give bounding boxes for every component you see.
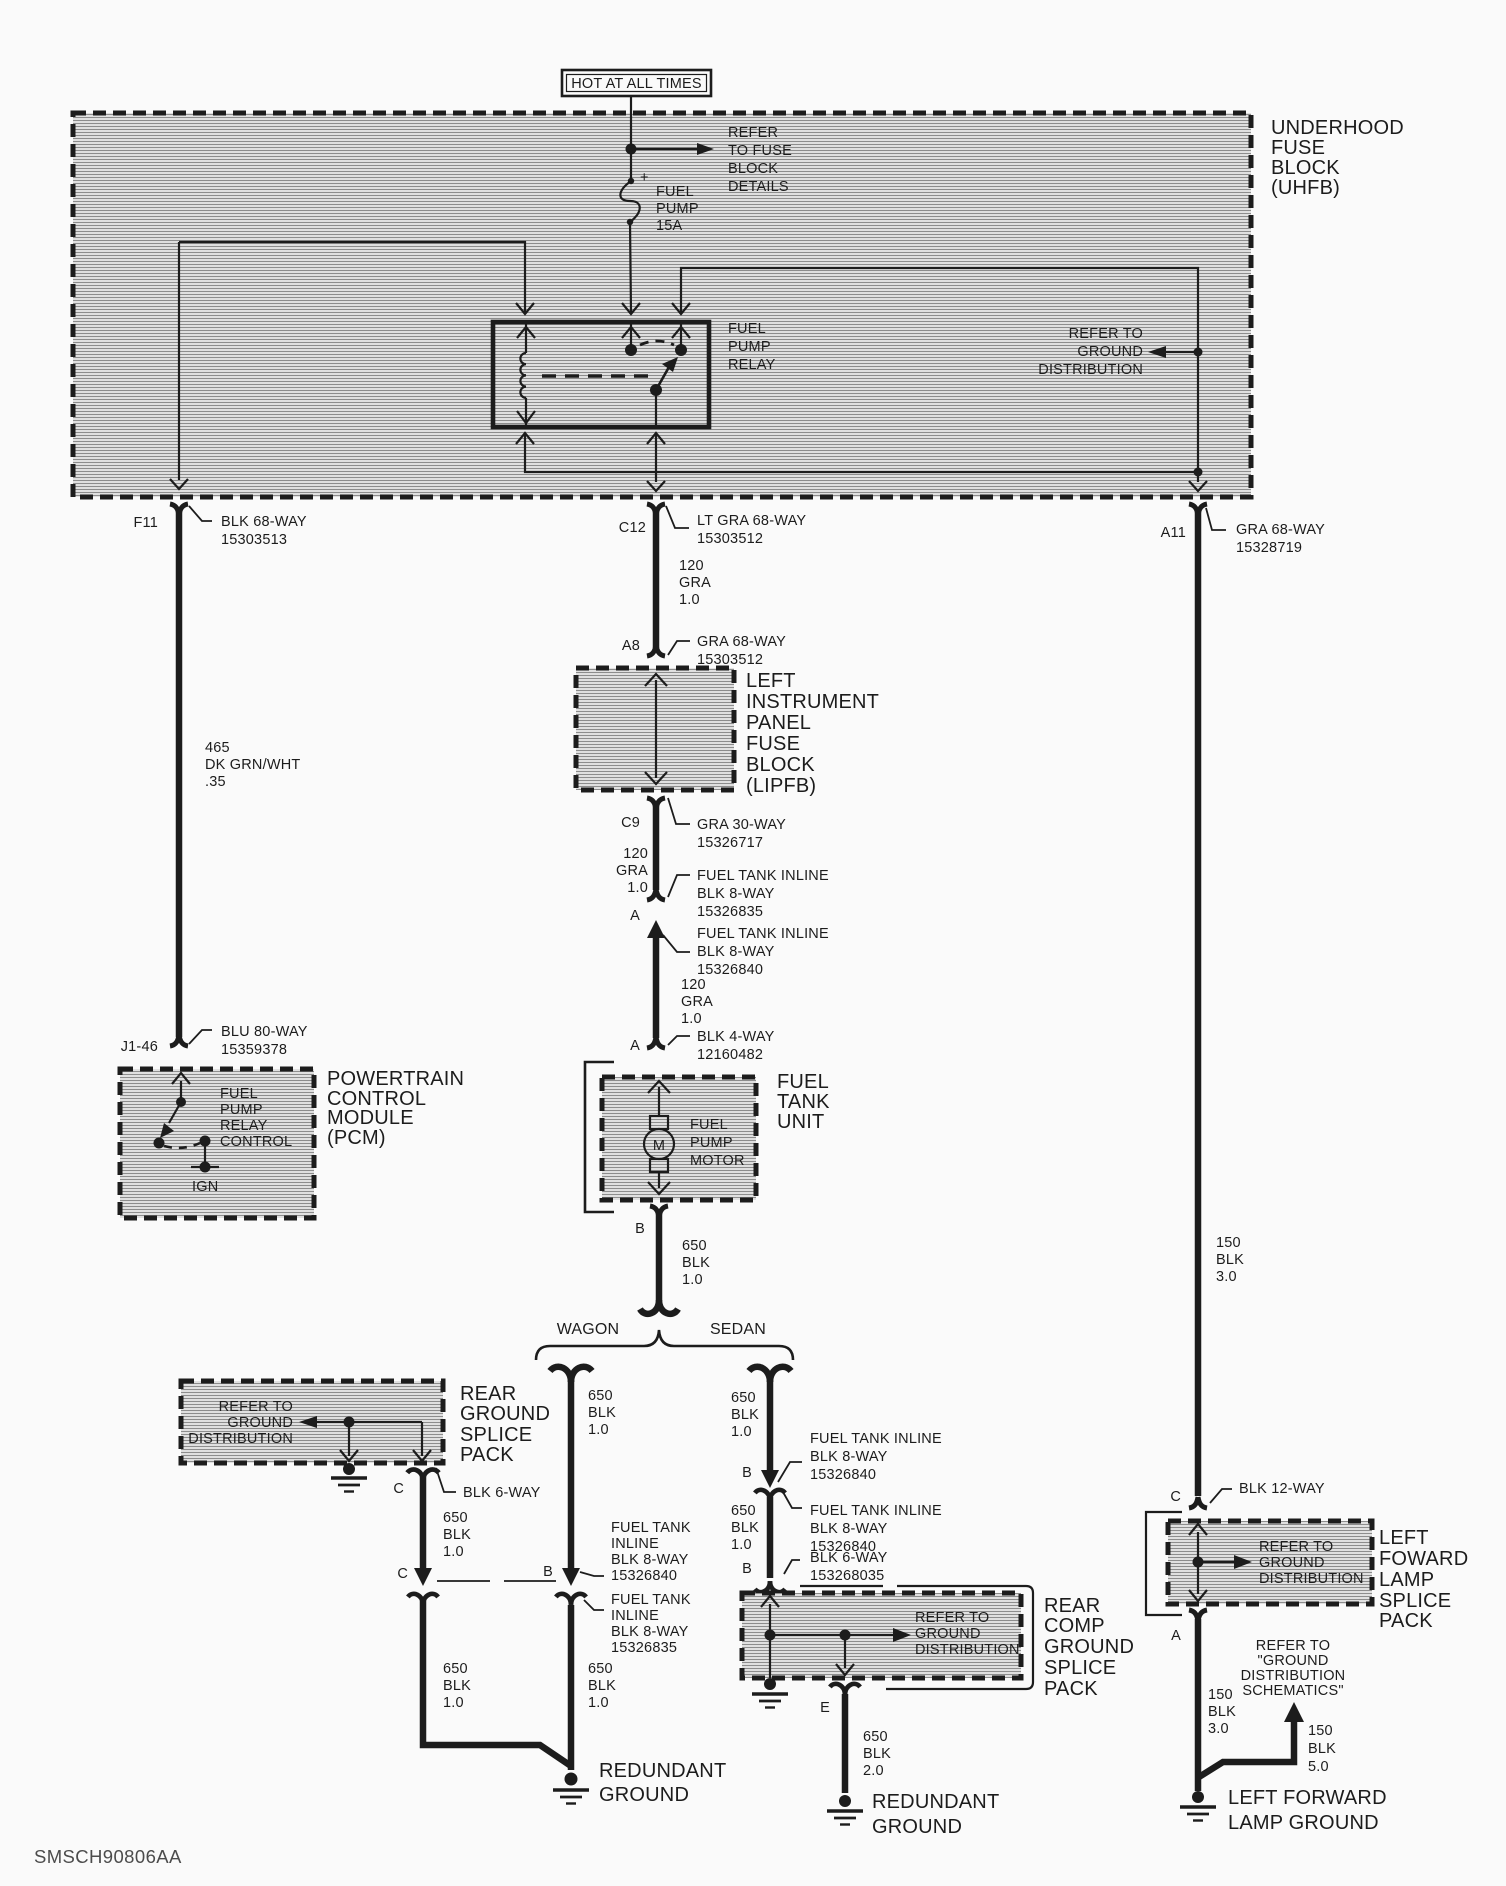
svg-text:SPLICE: SPLICE [460,1424,532,1446]
svg-text:RELAY: RELAY [728,357,776,373]
svg-text:LEFT: LEFT [1379,1527,1429,1549]
svg-text:GROUND: GROUND [915,1626,981,1642]
svg-text:BLK 6-WAY: BLK 6-WAY [810,1550,888,1566]
svg-text:A11: A11 [1161,525,1186,541]
svg-text:PUMP: PUMP [690,1135,733,1151]
svg-text:GROUND: GROUND [1259,1555,1325,1571]
svg-text:REFER TO: REFER TO [1069,326,1143,342]
svg-text:1.0: 1.0 [443,1695,464,1711]
svg-text:PACK: PACK [1379,1610,1433,1632]
svg-text:E: E [820,1700,830,1716]
svg-text:BLOCK: BLOCK [1271,157,1340,179]
svg-text:650: 650 [588,1388,613,1404]
svg-text:1.0: 1.0 [443,1544,464,1560]
svg-text:153268035: 153268035 [810,1568,884,1584]
svg-text:BLK: BLK [443,1527,471,1543]
svg-text:GROUND: GROUND [599,1784,689,1806]
svg-text:PUMP: PUMP [656,201,699,217]
svg-text:DETAILS: DETAILS [728,179,789,195]
svg-text:DISTRIBUTION: DISTRIBUTION [1241,1668,1346,1684]
svg-text:1.0: 1.0 [588,1422,609,1438]
svg-text:A: A [630,1038,640,1054]
svg-text:"GROUND: "GROUND [1258,1653,1329,1669]
svg-text:150: 150 [1216,1235,1241,1251]
svg-text:BLK: BLK [588,1678,616,1694]
svg-text:150: 150 [1208,1687,1233,1703]
svg-text:+: + [640,170,649,186]
svg-text:(UHFB): (UHFB) [1271,177,1340,199]
svg-text:BLK 8-WAY: BLK 8-WAY [611,1624,689,1640]
svg-text:1.0: 1.0 [731,1424,752,1440]
svg-text:UNIT: UNIT [777,1111,824,1133]
svg-text:BLK 8-WAY: BLK 8-WAY [697,886,775,902]
svg-text:COMP: COMP [1044,1615,1105,1637]
svg-text:GROUND: GROUND [227,1415,293,1431]
svg-text:FUEL TANK INLINE: FUEL TANK INLINE [697,926,829,942]
svg-text:FUSE: FUSE [746,733,800,755]
svg-text:C9: C9 [621,815,640,831]
svg-text:1.0: 1.0 [731,1537,752,1553]
svg-text:SEDAN: SEDAN [710,1321,766,1338]
svg-text:FUEL TANK: FUEL TANK [611,1520,691,1536]
svg-text:GRA: GRA [616,863,648,879]
svg-text:TO FUSE: TO FUSE [728,143,792,159]
svg-text:GROUND: GROUND [1077,344,1143,360]
svg-text:REFER TO: REFER TO [915,1610,989,1626]
svg-text:A8: A8 [622,638,640,654]
svg-text:CONTROL: CONTROL [220,1134,292,1150]
svg-text:3.0: 3.0 [1208,1721,1229,1737]
svg-text:TANK: TANK [777,1091,830,1113]
svg-text:DISTRIBUTION: DISTRIBUTION [1259,1571,1364,1587]
svg-text:120: 120 [623,846,648,862]
svg-text:PACK: PACK [1044,1678,1098,1700]
svg-text:1.0: 1.0 [681,1011,702,1027]
svg-text:BLK 68-WAY: BLK 68-WAY [221,514,307,530]
svg-text:GRA 68-WAY: GRA 68-WAY [697,634,786,650]
svg-text:REFER TO: REFER TO [1256,1638,1330,1654]
svg-text:REAR: REAR [460,1383,516,1405]
svg-text:GRA 30-WAY: GRA 30-WAY [697,817,786,833]
svg-text:15326835: 15326835 [697,904,763,920]
svg-text:12160482: 12160482 [697,1047,763,1063]
svg-text:BLK 8-WAY: BLK 8-WAY [810,1449,888,1465]
svg-text:REDUNDANT: REDUNDANT [599,1760,726,1782]
svg-text:F11: F11 [133,515,158,531]
svg-text:DISTRIBUTION: DISTRIBUTION [188,1431,293,1447]
svg-text:GROUND: GROUND [460,1403,550,1425]
svg-text:15326840: 15326840 [611,1568,677,1584]
svg-text:650: 650 [443,1510,468,1526]
svg-text:650: 650 [731,1390,756,1406]
svg-text:120: 120 [681,977,706,993]
svg-text:LAMP GROUND: LAMP GROUND [1228,1812,1379,1834]
svg-text:DK GRN/WHT: DK GRN/WHT [205,757,300,773]
svg-text:15326835: 15326835 [611,1640,677,1656]
svg-text:UNDERHOOD: UNDERHOOD [1271,117,1404,139]
svg-text:LEFT FORWARD: LEFT FORWARD [1228,1787,1387,1809]
svg-text:POWERTRAIN: POWERTRAIN [327,1068,464,1090]
svg-text:REFER TO: REFER TO [219,1399,293,1415]
svg-text:MODULE: MODULE [327,1107,414,1129]
svg-text:BLK: BLK [863,1746,891,1762]
svg-text:15326840: 15326840 [697,962,763,978]
svg-text:C12: C12 [619,520,646,536]
svg-text:BLK 8-WAY: BLK 8-WAY [810,1521,888,1537]
svg-text:LAMP: LAMP [1379,1569,1434,1591]
svg-text:INLINE: INLINE [611,1536,659,1552]
svg-text:SMSCH90806AA: SMSCH90806AA [34,1846,182,1867]
svg-text:15303512: 15303512 [697,531,763,547]
svg-text:BLK: BLK [1208,1704,1236,1720]
svg-text:FUEL: FUEL [728,321,766,337]
svg-text:2.0: 2.0 [863,1763,884,1779]
svg-text:GROUND: GROUND [1044,1636,1134,1658]
svg-text:.35: .35 [205,774,226,790]
svg-text:IGN: IGN [192,1179,218,1195]
svg-text:FUEL TANK INLINE: FUEL TANK INLINE [810,1431,942,1447]
svg-text:BLK 8-WAY: BLK 8-WAY [697,944,775,960]
svg-text:(PCM): (PCM) [327,1127,386,1149]
svg-text:FUEL TANK INLINE: FUEL TANK INLINE [810,1503,942,1519]
svg-text:1.0: 1.0 [682,1272,703,1288]
svg-text:PUMP: PUMP [728,339,771,355]
svg-text:REDUNDANT: REDUNDANT [872,1791,999,1813]
svg-text:465: 465 [205,740,230,756]
svg-text:15303513: 15303513 [221,532,287,548]
svg-text:BLK: BLK [731,1407,759,1423]
svg-text:SCHEMATICS": SCHEMATICS" [1242,1683,1343,1699]
svg-text:1.0: 1.0 [627,880,648,896]
svg-text:150: 150 [1308,1723,1333,1739]
svg-text:650: 650 [863,1729,888,1745]
svg-text:(LIPFB): (LIPFB) [746,775,816,797]
svg-text:BLK: BLK [443,1678,471,1694]
svg-text:FUEL TANK: FUEL TANK [611,1592,691,1608]
svg-text:PANEL: PANEL [746,712,811,734]
svg-text:BLK 8-WAY: BLK 8-WAY [611,1552,689,1568]
svg-text:15A: 15A [656,218,683,234]
svg-text:HOT AT ALL TIMES: HOT AT ALL TIMES [571,76,702,92]
svg-text:BLK: BLK [1308,1741,1336,1757]
svg-text:INSTRUMENT: INSTRUMENT [746,691,879,713]
svg-text:FUEL: FUEL [777,1071,829,1093]
svg-text:REFER: REFER [728,125,778,141]
svg-text:FUEL TANK INLINE: FUEL TANK INLINE [697,868,829,884]
svg-text:C: C [1170,1489,1181,1505]
svg-text:120: 120 [679,558,704,574]
svg-text:GROUND: GROUND [872,1816,962,1838]
svg-text:B: B [543,1564,553,1580]
svg-text:FOWARD: FOWARD [1379,1548,1468,1570]
svg-text:INLINE: INLINE [611,1608,659,1624]
svg-text:A: A [1171,1628,1181,1644]
svg-text:15326840: 15326840 [810,1467,876,1483]
svg-text:FUEL: FUEL [690,1117,728,1133]
svg-text:SPLICE: SPLICE [1044,1657,1116,1679]
svg-text:BLK: BLK [731,1520,759,1536]
svg-text:15328719: 15328719 [1236,540,1302,556]
svg-text:FUSE: FUSE [1271,137,1325,159]
svg-text:BLK: BLK [588,1405,616,1421]
svg-text:BLK: BLK [682,1255,710,1271]
svg-text:M: M [653,1138,665,1154]
svg-text:5.0: 5.0 [1308,1759,1329,1775]
svg-text:WAGON: WAGON [557,1321,620,1338]
svg-text:BLK 6-WAY: BLK 6-WAY [463,1485,541,1501]
svg-text:REFER TO: REFER TO [1259,1539,1333,1555]
svg-text:REAR: REAR [1044,1595,1100,1617]
svg-text:3.0: 3.0 [1216,1269,1237,1285]
svg-text:LT GRA 68-WAY: LT GRA 68-WAY [697,513,806,529]
svg-text:DISTRIBUTION: DISTRIBUTION [915,1642,1020,1658]
svg-text:GRA: GRA [681,994,713,1010]
svg-text:GRA 68-WAY: GRA 68-WAY [1236,522,1325,538]
svg-text:15359378: 15359378 [221,1042,287,1058]
svg-text:1.0: 1.0 [588,1695,609,1711]
svg-text:B: B [742,1465,752,1481]
svg-text:650: 650 [682,1238,707,1254]
svg-text:FUEL: FUEL [220,1086,258,1102]
svg-text:LEFT: LEFT [746,670,796,692]
svg-text:MOTOR: MOTOR [690,1153,745,1169]
svg-text:A: A [630,908,640,924]
svg-text:650: 650 [731,1503,756,1519]
svg-text:BLU 80-WAY: BLU 80-WAY [221,1024,308,1040]
svg-text:FUEL: FUEL [656,184,694,200]
svg-text:C: C [393,1481,404,1497]
svg-text:RELAY: RELAY [220,1118,268,1134]
svg-text:SPLICE: SPLICE [1379,1590,1451,1612]
svg-text:650: 650 [588,1661,613,1677]
svg-text:BLOCK: BLOCK [728,161,778,177]
svg-text:DISTRIBUTION: DISTRIBUTION [1038,362,1143,378]
svg-text:BLK 12-WAY: BLK 12-WAY [1239,1481,1325,1497]
svg-text:PUMP: PUMP [220,1102,263,1118]
svg-text:15326717: 15326717 [697,835,763,851]
svg-text:BLK 4-WAY: BLK 4-WAY [697,1029,775,1045]
svg-text:BLOCK: BLOCK [746,754,815,776]
svg-text:PACK: PACK [460,1444,514,1466]
svg-text:650: 650 [443,1661,468,1677]
svg-text:B: B [742,1561,752,1577]
svg-text:C: C [397,1566,408,1582]
svg-text:J1-46: J1-46 [121,1039,158,1055]
svg-text:1.0: 1.0 [679,592,700,608]
svg-text:B: B [635,1221,645,1237]
svg-text:BLK: BLK [1216,1252,1244,1268]
svg-text:GRA: GRA [679,575,711,591]
